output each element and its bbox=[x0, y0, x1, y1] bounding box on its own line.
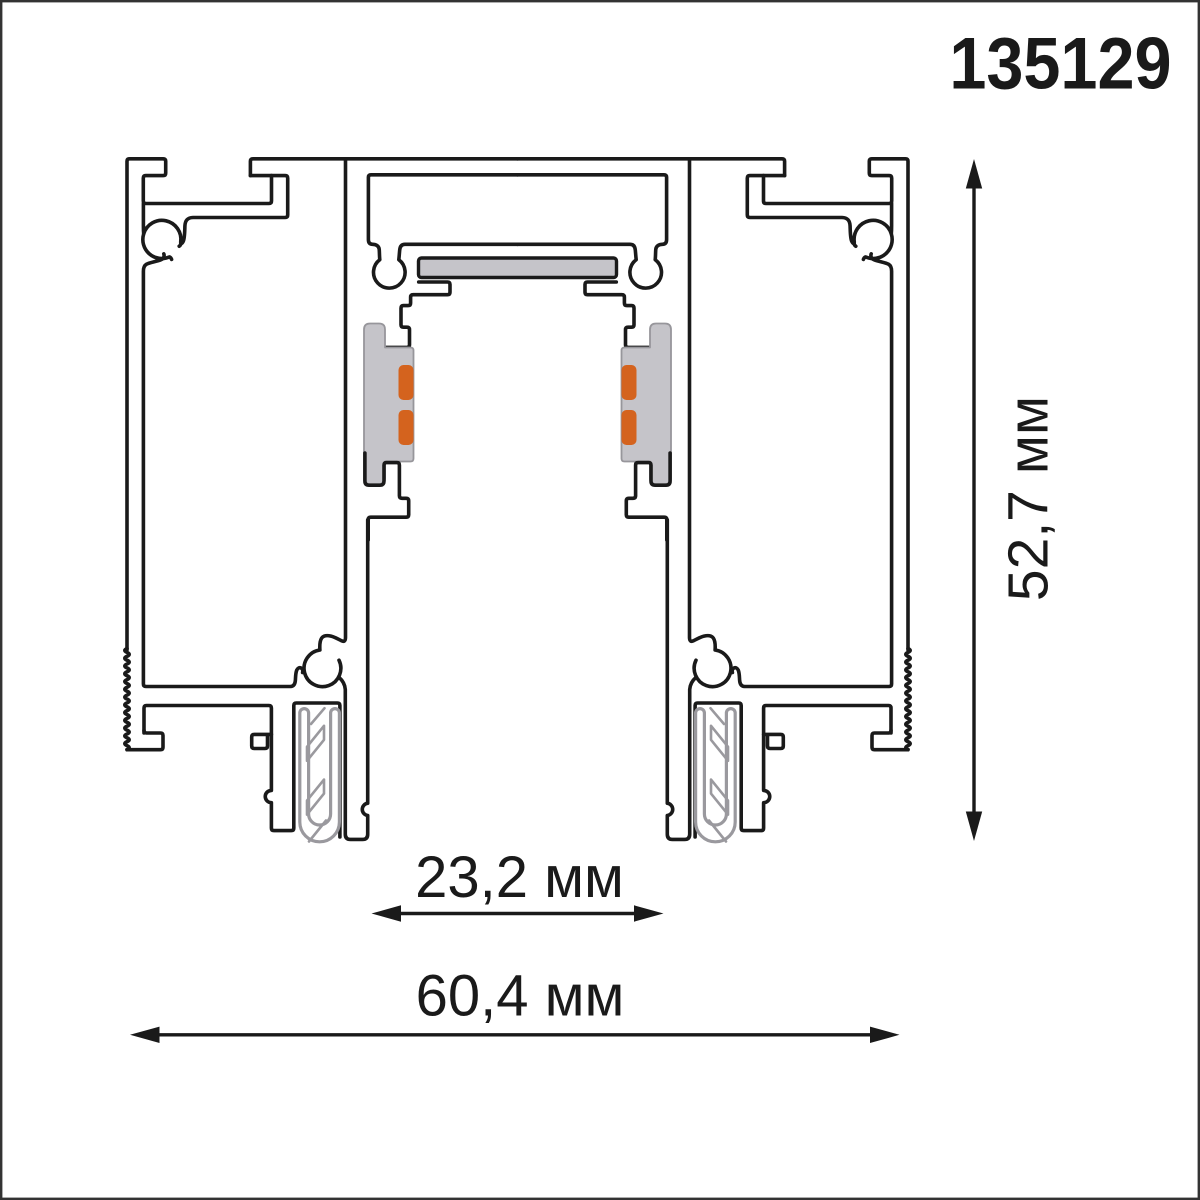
svg-text:60,4 мм: 60,4 мм bbox=[416, 964, 625, 1029]
svg-text:23,2 мм: 23,2 мм bbox=[415, 845, 624, 910]
svg-text:52,7 мм: 52,7 мм bbox=[997, 396, 1061, 601]
svg-text:135129: 135129 bbox=[949, 23, 1171, 105]
